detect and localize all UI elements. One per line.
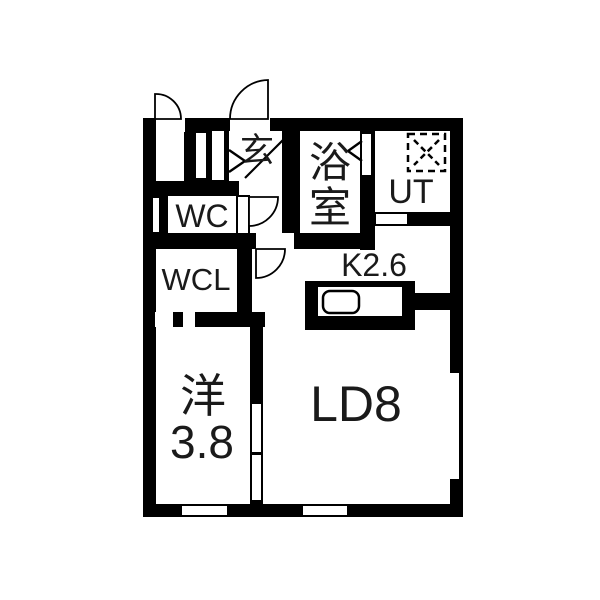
bathroom-door-leaf [361,133,372,176]
room-label-bathroom-2: 室 [309,184,351,231]
sink-icon [323,291,359,313]
wc-door-leaf [237,196,249,234]
sliding-door-panel-2 [252,455,261,500]
wall-bathroom-left [282,131,300,233]
room-label-western-char: 洋 [180,370,226,422]
door-gap-hall-ld [256,233,294,249]
room-label-western-size: 3.8 [170,416,234,468]
room-label-bathroom-1: 浴 [309,139,351,186]
room-label-wc: WC [175,198,228,234]
entry-strip-1 [196,133,206,178]
window-bottom-2 [303,506,347,515]
room-label-kitchen: K2.6 [341,247,407,283]
entry-strip-2 [212,131,224,180]
window-bottom-1 [182,506,227,515]
room-label-ut: UT [388,173,433,211]
wc-left-notch [153,198,159,232]
wcl-dash-gap-1 [155,312,173,327]
room-label-wcl: WCL [162,262,231,297]
room-label-ld: LD8 [310,376,402,432]
wall-top [143,118,463,131]
wcl-dash-gap-2 [183,312,195,327]
window-right [450,373,459,479]
sliding-door-panel-1 [252,404,261,452]
door-gap-ut [376,214,407,224]
room-label-genkan: 玄 [240,132,274,170]
wall-kitchen-step [402,293,450,310]
floorplan-canvas: 玄 浴 室 UT WC WCL K2.6 洋 3.8 LD8 [0,0,600,600]
wall-entry-closet-bottom [143,181,239,196]
floorplan-svg: 玄 浴 室 UT WC WCL K2.6 洋 3.8 LD8 [0,0,600,600]
